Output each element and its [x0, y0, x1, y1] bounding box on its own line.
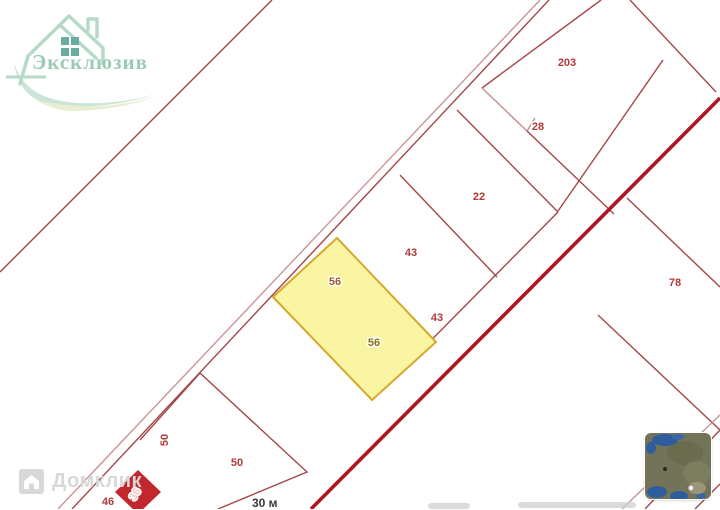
parcel-label: 78 — [669, 277, 681, 289]
domclick-house-icon — [18, 468, 45, 495]
parcel-label: 56 — [329, 276, 341, 288]
parcel-label: 28 — [532, 121, 544, 133]
agency-name: Эксклюзив — [32, 50, 148, 75]
selected-parcel-56[interactable] — [273, 238, 436, 400]
layer-switcher-thumbnail[interactable] — [645, 433, 711, 499]
satellite-preview-image — [645, 433, 711, 499]
parcel-label: 43 — [431, 312, 443, 324]
attribution-text-fragment — [428, 503, 470, 509]
parcel-label: 203 — [558, 57, 576, 69]
parcel-label: 22 — [473, 191, 485, 203]
parcel-label: 50 — [231, 457, 243, 469]
attribution-text-fragment — [518, 502, 636, 508]
parcel-labels: 2032822434378565650504636 — [102, 57, 681, 508]
parcel-label: 43 — [405, 247, 417, 259]
parcel-label: 56 — [368, 337, 380, 349]
parcel-label: 50 — [159, 434, 171, 446]
scale-label: 30 м — [252, 496, 278, 510]
watermark-text: Домклик — [52, 470, 142, 493]
cadastral-map-page: { "logo": { "brand": "Эксклюзив" }, "wat… — [0, 0, 720, 509]
watermark: Домклик — [18, 468, 142, 495]
parcel-label: 46 — [102, 496, 114, 508]
